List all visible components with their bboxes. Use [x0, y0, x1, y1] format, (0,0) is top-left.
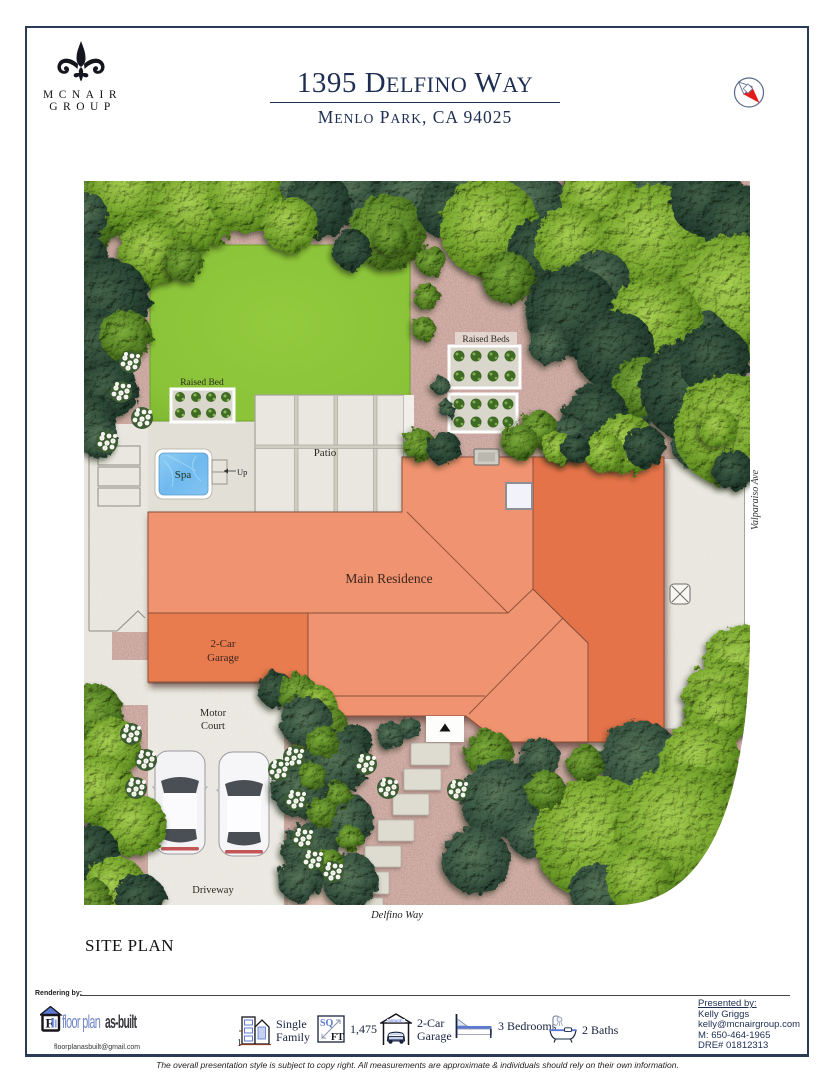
svg-text:2-Car: 2-Car [210, 638, 235, 650]
svg-text:Main Residence: Main Residence [345, 571, 432, 586]
svg-text:Delfino Way: Delfino Way [370, 910, 423, 921]
svg-text:Patio: Patio [314, 447, 337, 459]
svg-text:Motor: Motor [200, 708, 227, 719]
svg-text:Driveway: Driveway [192, 885, 234, 896]
svg-text:Raised Beds: Raised Beds [462, 335, 510, 345]
svg-text:SQ: SQ [320, 1018, 334, 1029]
svg-text:FT: FT [331, 1032, 344, 1043]
svg-text:Valparaiso Ave: Valparaiso Ave [750, 469, 761, 530]
svg-text:1: 1 [237, 1038, 242, 1049]
svg-text:as-built: as-built [105, 1012, 137, 1033]
svg-text:Spa: Spa [175, 469, 192, 481]
svg-text:Up: Up [237, 467, 247, 477]
svg-text:Court: Court [201, 721, 225, 732]
svg-text:Raised Bed: Raised Bed [180, 378, 224, 388]
svg-text:floor plan: floor plan [62, 1012, 101, 1033]
svg-text:GARAGE: GARAGE [388, 1019, 403, 1023]
svg-text:Garage: Garage [207, 652, 239, 664]
